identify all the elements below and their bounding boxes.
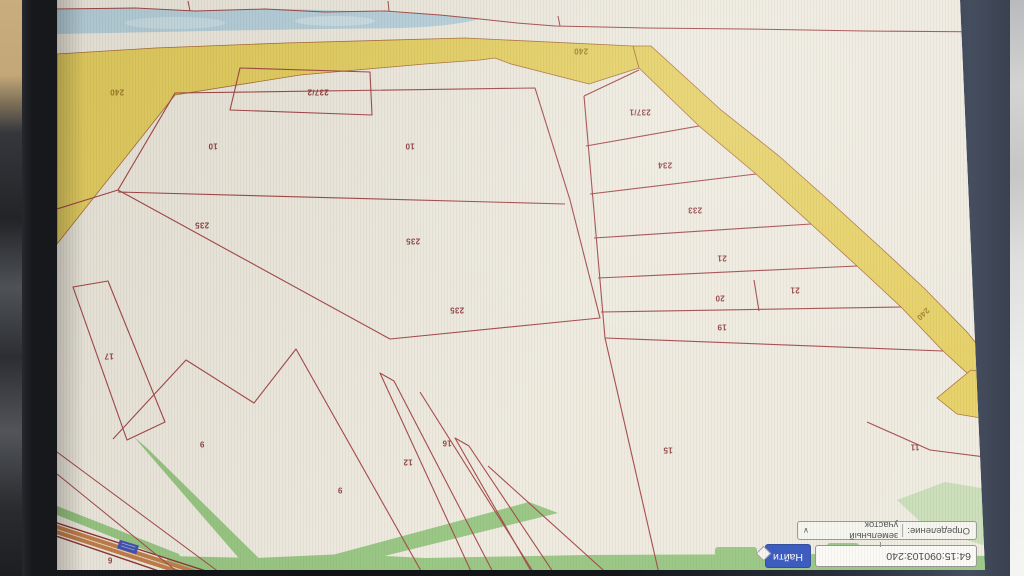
background-right <box>1010 0 1024 576</box>
screen: 240240240237/2237/1234233212120191511101… <box>57 0 985 570</box>
search-panel: 64:15:090103:240 Найти Определение: земе… <box>747 521 977 568</box>
photographed-monitor-scene: 240240240237/2237/1234233212120191511101… <box>0 0 1024 576</box>
selector-value: земельный участок <box>814 520 902 542</box>
cadastral-number-input[interactable]: 64:15:090103:240 <box>815 545 977 567</box>
search-button[interactable]: Найти <box>765 544 811 568</box>
upside-down-content: 240240240237/2237/1234233212120191511101… <box>57 0 985 570</box>
background-left <box>0 0 22 576</box>
cadastral-map[interactable]: 240240240237/2237/1234233212120191511101… <box>57 0 985 570</box>
search-row: 64:15:090103:240 Найти <box>747 544 977 568</box>
selector-divider <box>902 524 903 537</box>
object-type-dropdown[interactable]: Определение: земельный участок ∨ <box>797 521 977 540</box>
chevron-down-icon: ∨ <box>798 526 814 535</box>
map-canvas <box>57 0 985 570</box>
selector-label: Определение: <box>903 525 976 536</box>
panel-connector <box>880 542 881 547</box>
